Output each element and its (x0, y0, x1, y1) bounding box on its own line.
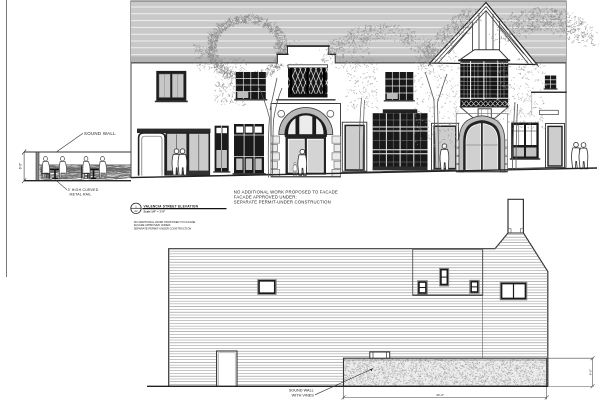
svg-text:A2: A2 (134, 209, 138, 213)
svg-text:SOUND WALL: SOUND WALL (84, 131, 116, 136)
svg-text:3' HIGH CURVED: 3' HIGH CURVED (68, 188, 99, 192)
svg-text:WITH VINES: WITH VINES (292, 393, 315, 397)
svg-text:43'-0": 43'-0" (436, 393, 444, 397)
svg-text:SEPARATE PERMIT-UNDER CONSTRUC: SEPARATE PERMIT-UNDER CONSTRUCTION (134, 227, 192, 231)
svg-text:SEPARATE PERMIT-UNDER CONSTRUC: SEPARATE PERMIT-UNDER CONSTRUCTION (234, 199, 331, 204)
svg-text:1: 1 (135, 204, 137, 208)
svg-text:Scale 1/4" = 1'-0": Scale 1/4" = 1'-0" (144, 209, 166, 213)
svg-text:6'-0": 6'-0" (19, 163, 23, 169)
svg-text:6'-0": 6'-0" (588, 369, 592, 375)
svg-text:VALENCIA STREET ELEVATION: VALENCIA STREET ELEVATION (144, 204, 199, 208)
svg-text:METAL RAIL: METAL RAIL (70, 193, 92, 197)
svg-text:SOUND WALL: SOUND WALL (289, 389, 314, 393)
